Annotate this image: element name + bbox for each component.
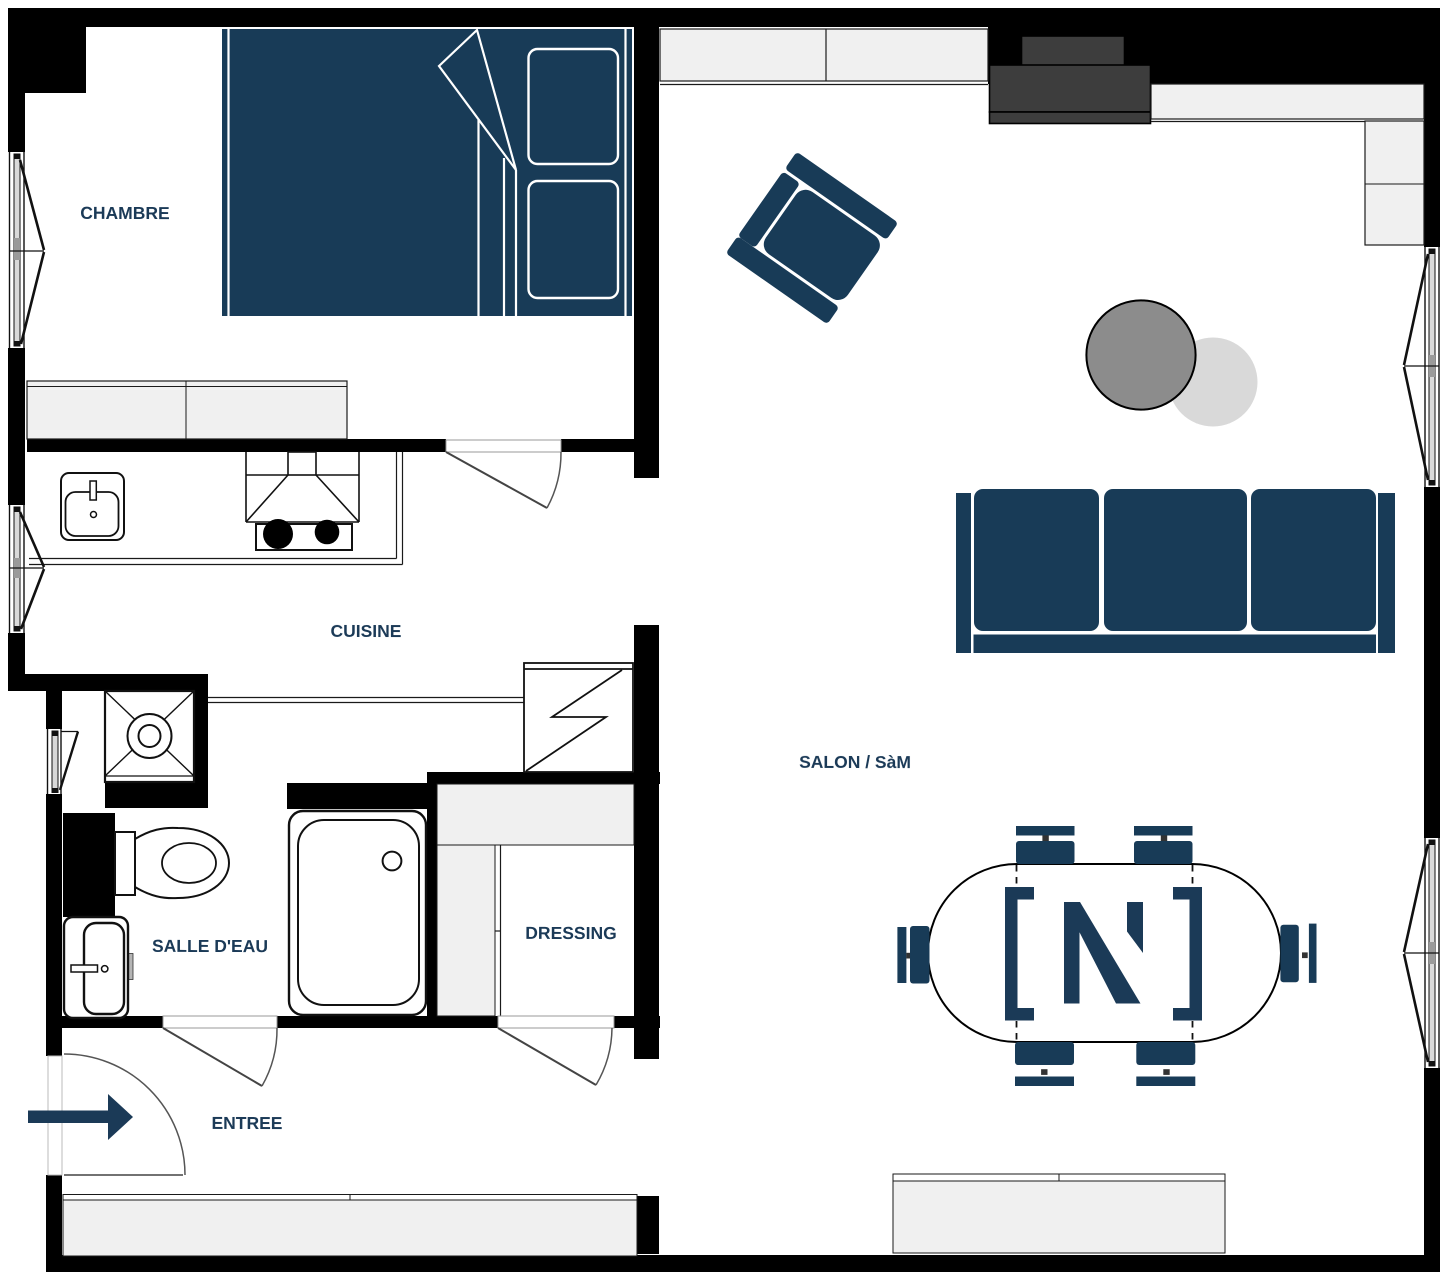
svg-text:SALON / SàM: SALON / SàM [799, 752, 911, 772]
svg-text:DRESSING: DRESSING [525, 923, 616, 943]
svg-text:CUISINE: CUISINE [330, 621, 401, 641]
svg-text:CHAMBRE: CHAMBRE [80, 203, 169, 223]
svg-text:SALLE D'EAU: SALLE D'EAU [152, 936, 268, 956]
svg-text:ENTREE: ENTREE [211, 1113, 282, 1133]
